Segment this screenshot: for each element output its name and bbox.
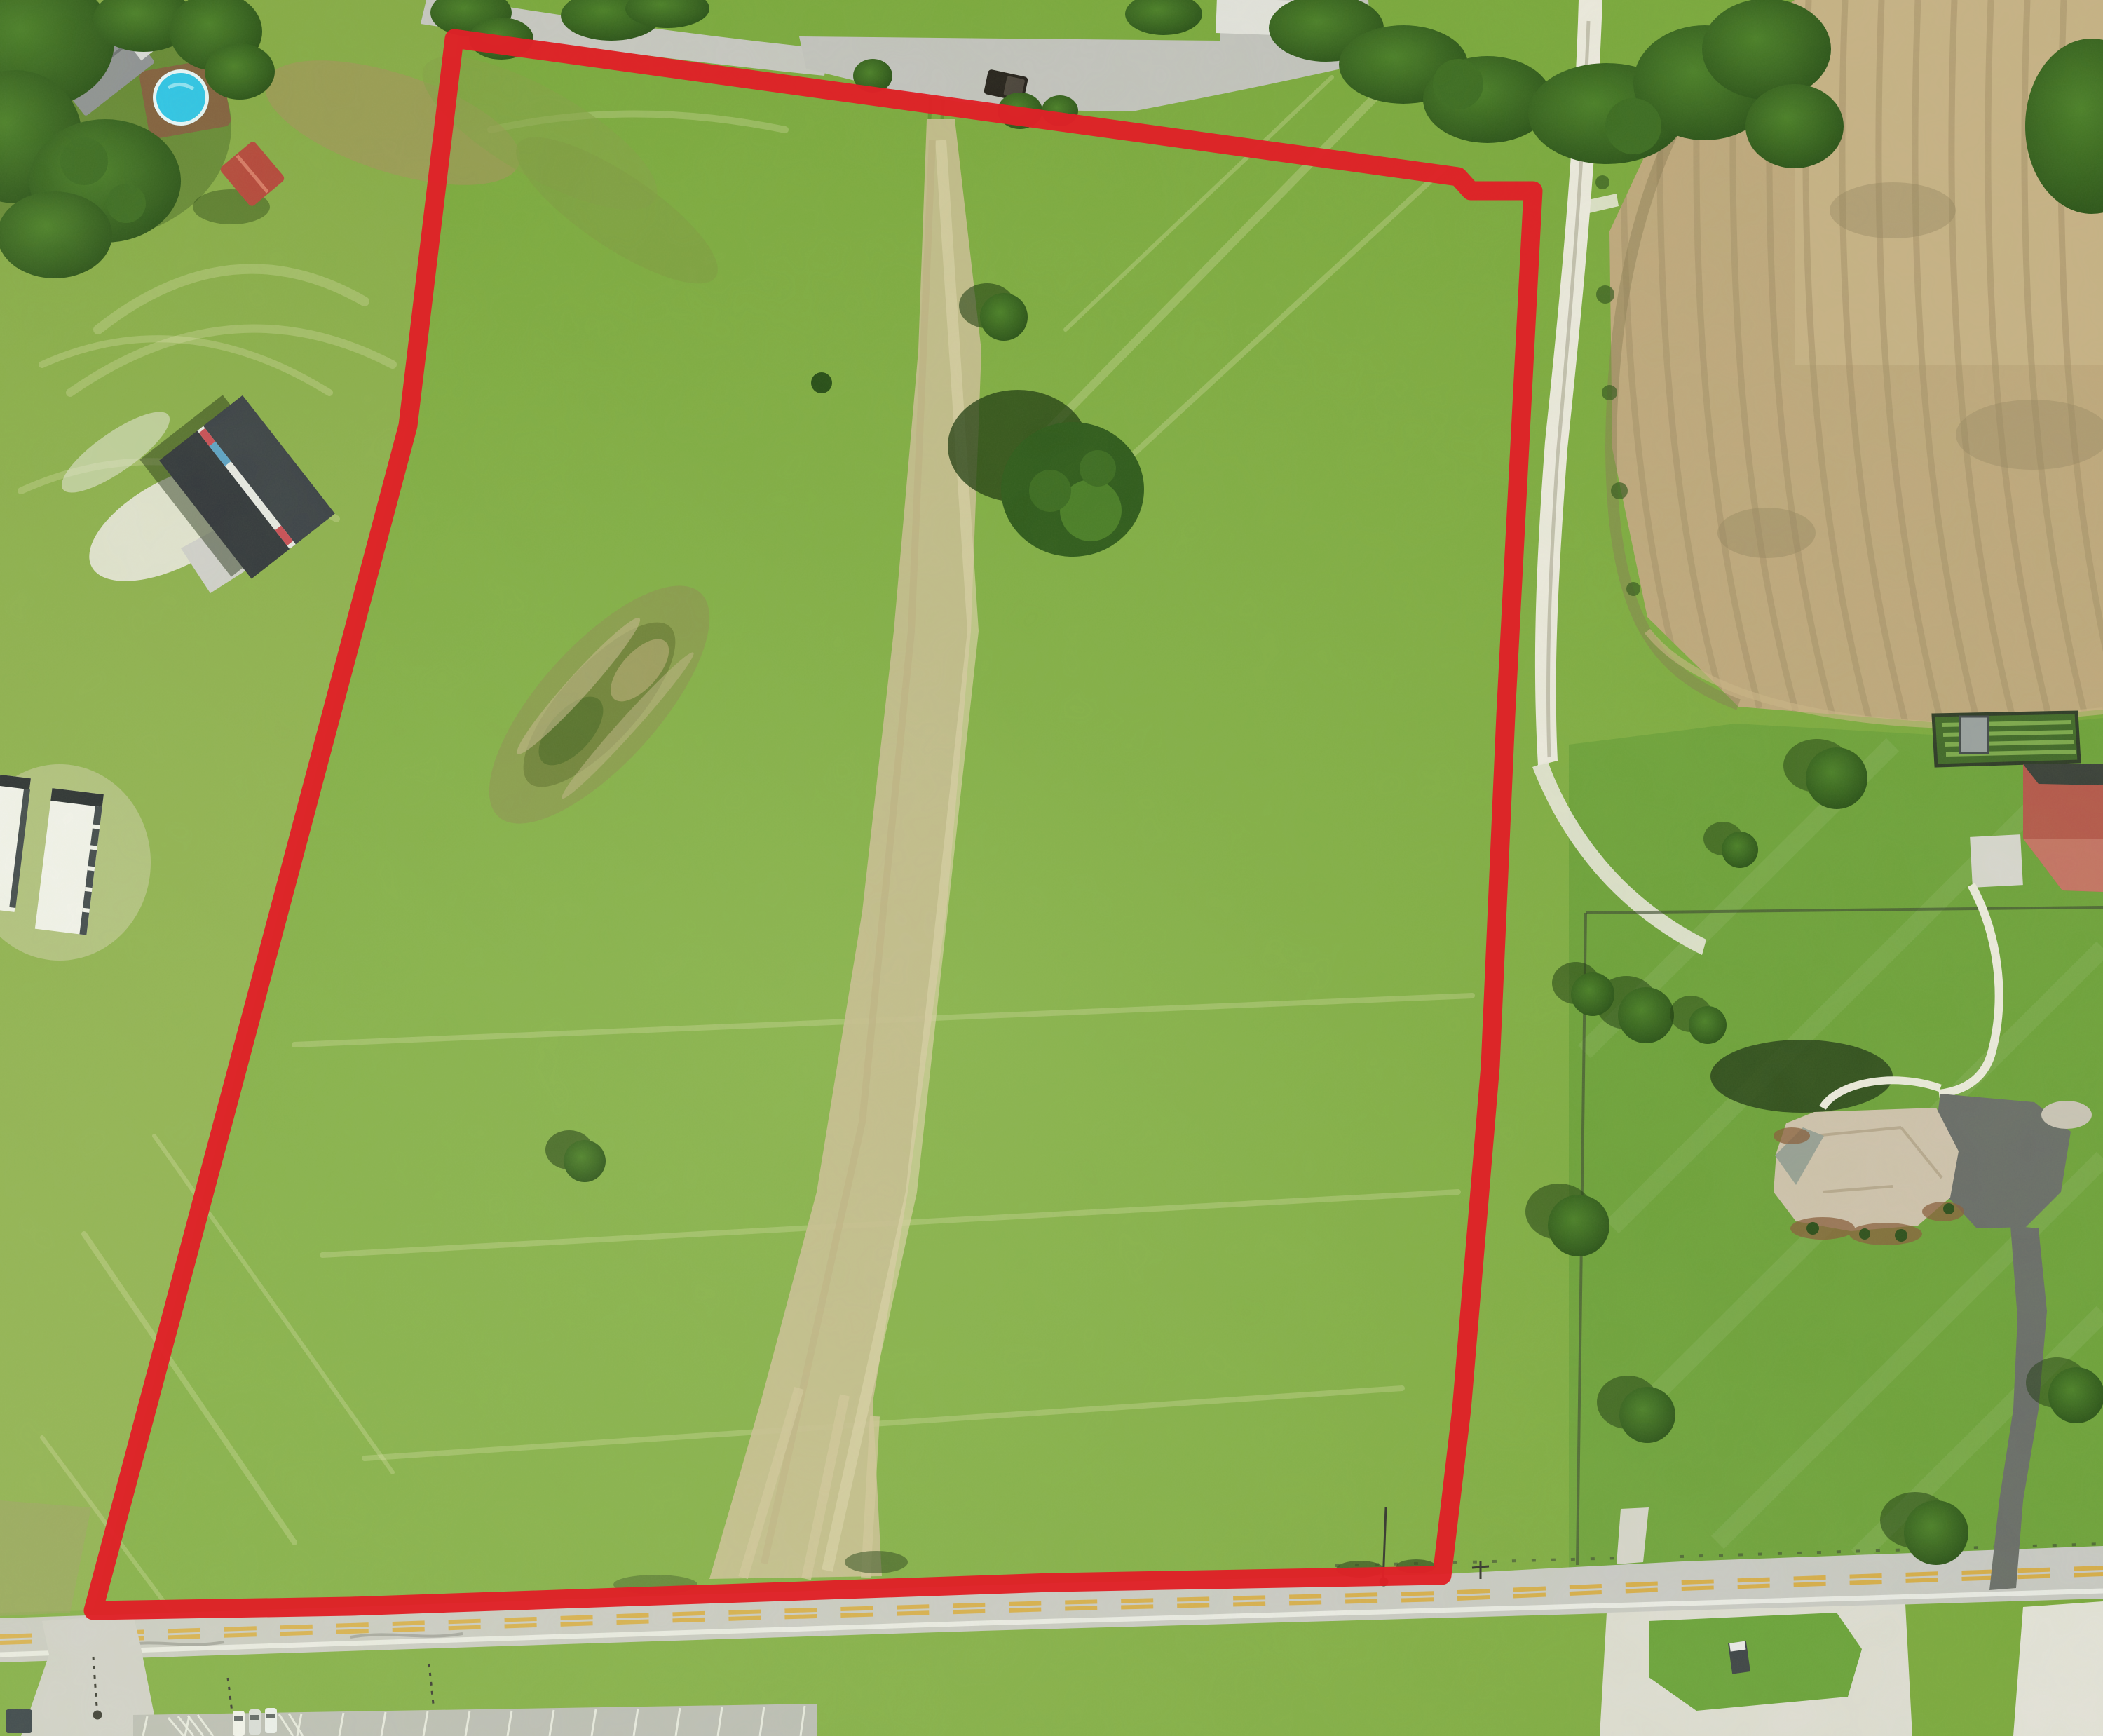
aerial-photo [0, 0, 2103, 1736]
corner-light-wash [0, 0, 2103, 1736]
aerial-photo-canvas [0, 0, 2103, 1736]
